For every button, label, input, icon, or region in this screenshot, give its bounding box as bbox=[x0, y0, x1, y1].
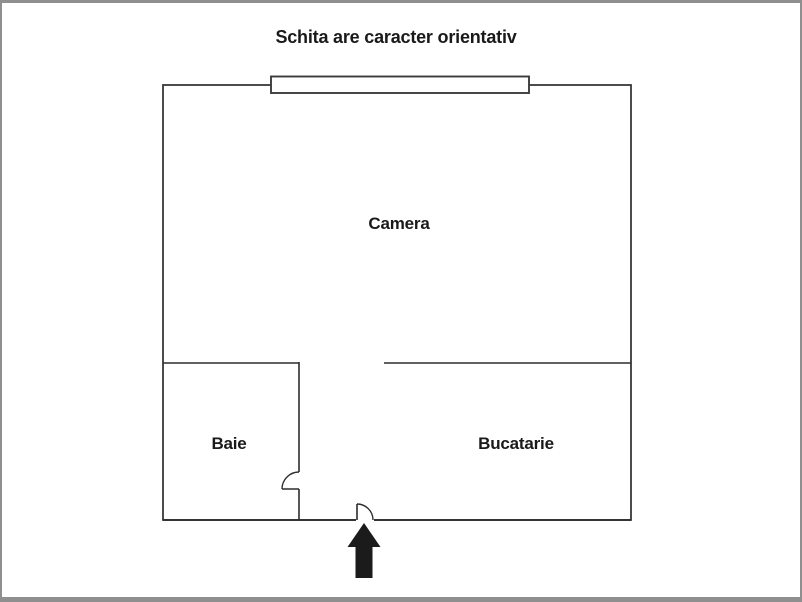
window bbox=[271, 77, 529, 94]
room-label-camera: Camera bbox=[368, 214, 429, 234]
floor-plan-page: Schita are caracter orientativ Camera bbox=[0, 0, 802, 602]
page-title: Schita are caracter orientativ bbox=[275, 27, 516, 48]
floor-plan-svg bbox=[0, 0, 802, 602]
entrance-arrow-icon bbox=[348, 523, 381, 578]
baie-door-arc bbox=[282, 472, 299, 489]
outer-walls bbox=[163, 85, 631, 520]
room-label-bucatarie: Bucatarie bbox=[478, 434, 554, 454]
room-label-baie: Baie bbox=[211, 434, 246, 454]
